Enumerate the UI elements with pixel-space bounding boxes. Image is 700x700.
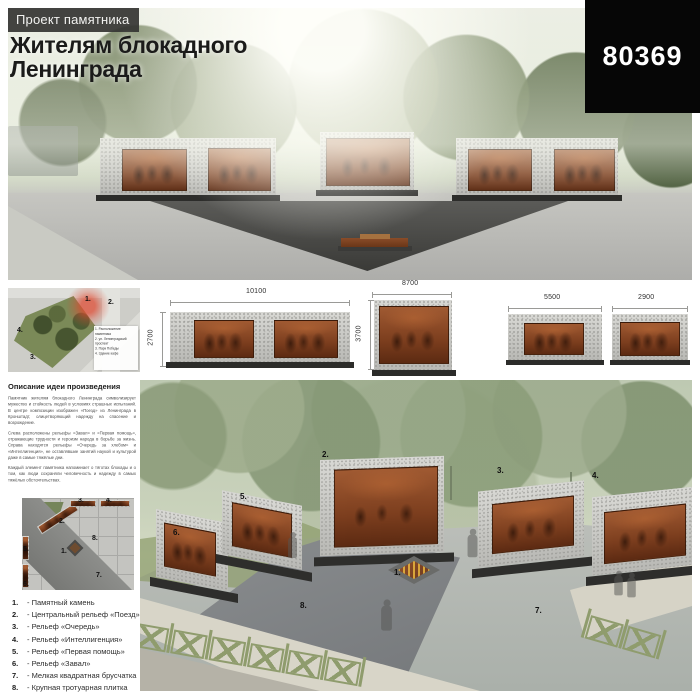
render-callout-3: 3. [497,466,504,475]
elevation-relief [620,322,680,356]
elevation-relief [524,323,584,355]
legend-item-num: 1. [12,598,27,607]
tree-trunk [450,466,452,500]
render-callout-8: 8. [300,601,307,610]
render-relief-zaval [164,523,216,577]
legend-item-text: - Крупная тротуарная плитка [27,683,128,692]
legend-item-text: - Рельеф «Интеллигенция» [27,635,122,644]
entry-id-box: 80369 [585,0,700,113]
top-view-plan: 1. 2. 3. 4. 5. 6. 7. 8. [22,498,134,590]
dim-line [162,312,163,367]
map-monument-highlight [60,288,116,328]
legend-item-num: 7. [12,671,27,680]
legend-item-text: - Рельеф «Первая помощь» [27,647,125,656]
person-silhouette [288,532,297,558]
plan-callout-7: 7. [96,572,102,579]
dim-width-center: 8700 [402,280,418,287]
plan-wall-4 [100,500,130,507]
dim-line [508,308,602,309]
plan-callout-5: 5. [23,546,29,553]
page-title: Жителям блокадного Ленинграда [10,34,247,82]
render-callout-7: 7. [535,606,542,615]
entry-id: 80369 [602,41,682,72]
person-silhouette [381,599,392,630]
legend-item-text: - Мелкая квадратная брусчатка [27,671,136,680]
elevation-central-wall: 8700 3700 [360,280,464,378]
project-kicker: Проект памятника [8,8,139,32]
plan-callout-6: 6. [23,581,29,588]
map-legend-line: 2. ул. Ленинградский проспект [95,337,137,347]
elevation-relief [194,320,254,358]
map-marker-1: 1. [85,296,91,303]
perspective-render: 1. 2. 3. 4. 5. 6. 7. 8. [140,380,692,691]
render-callout-1: 1. [394,568,401,577]
elevation-relief [274,320,338,358]
legend-item-num: 8. [12,683,27,692]
elevation-base [610,360,690,365]
dim-height-left: 2700 [148,329,155,345]
render-relief-ochered [492,495,574,554]
elevation-right-granite-b [612,314,688,360]
title-line-2: Ленинграда [10,58,247,82]
person-silhouette [627,573,636,598]
elevation-center-granite [374,300,452,370]
dim-height-center: 3700 [356,325,363,341]
render-callout-6: 6. [173,528,180,537]
description-paragraph: Каждый элемент памятника напоминает о тя… [8,465,136,483]
render-wall-3 [478,480,584,567]
dim-line [170,302,350,303]
plan-callout-1: 1. [61,548,67,555]
render-wall-2-central [320,456,444,556]
dim-line [372,294,452,295]
legend-item-num: 6. [12,659,27,668]
site-location-map: 1. Расположение памятника 2. ул. Ленингр… [8,288,140,372]
elevation-left-granite [170,312,350,362]
legend-item-num: 2. [12,610,27,619]
legend-item-num: 5. [12,647,27,656]
dim-width-right-a: 5500 [544,294,560,301]
description-heading: Описание идеи произведения [8,382,136,391]
description-paragraph: Слева расположены рельефы «Завал» и «Пер… [8,430,136,461]
elevation-base [166,362,354,368]
elevation-base [506,360,604,365]
render-wall-4 [592,487,692,576]
legend-item-text: - Рельеф «Очередь» [27,622,100,631]
title-line-1: Жителям блокадного [10,34,247,58]
map-legend-box: 1. Расположение памятника 2. ул. Ленингр… [94,326,138,370]
description-paragraph: Памятник жителям блокадного Ленинграда с… [8,395,136,426]
render-wall-6 [156,509,228,591]
plan-callout-8: 8. [92,535,98,542]
legend-item-text: - Рельеф «Завал» [27,659,90,668]
dim-line [370,300,371,370]
plan-callout-4: 4. [106,498,112,504]
map-legend-line: 1. Расположение памятника [95,327,137,337]
map-legend-line: 4. Здание кафе [95,351,137,356]
person-silhouette [468,529,478,558]
person-silhouette [614,571,623,596]
render-relief-poezd [334,466,438,548]
plan-callout-3: 3. [78,498,84,504]
dim-width-left: 10100 [246,288,266,295]
map-marker-2: 2. [108,299,114,306]
legend-item-num: 4. [12,635,27,644]
dim-width-right-b: 2900 [638,294,654,301]
elevation-right-granite-a [508,314,602,360]
map-marker-3: 3. [30,354,36,361]
render-callout-5: 5. [240,492,247,501]
render-callout-2: 2. [322,450,329,459]
elevation-base [372,370,456,376]
dim-line [612,308,688,309]
legend-item-text: - Памятный камень [27,598,95,607]
elevation-left-wall: 10100 2700 [150,288,362,378]
render-relief-intelligencia [604,503,686,564]
render-callout-4: 4. [592,471,599,480]
elevation-right-walls: 5500 2900 [500,288,694,378]
legend-item-num: 3. [12,622,27,631]
legend-item-text: - Центральный рельеф «Поезд» [27,610,140,619]
plan-callout-2: 2. [59,518,65,525]
map-marker-4: 4. [17,327,23,334]
render-relief-pervaya-pomosch [232,502,292,558]
elevation-relief-poezd [379,306,449,364]
